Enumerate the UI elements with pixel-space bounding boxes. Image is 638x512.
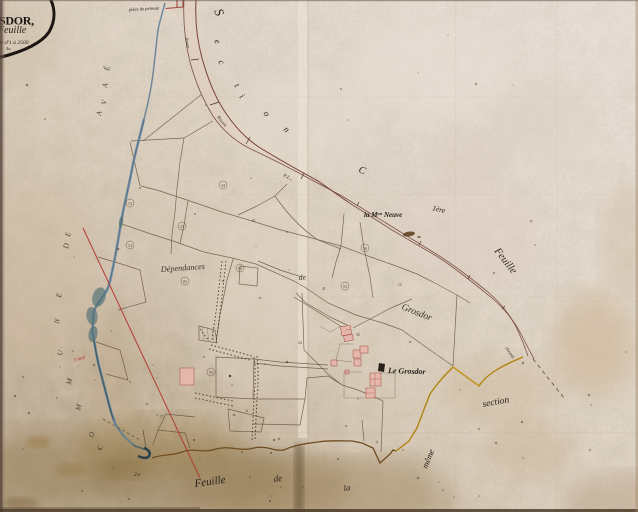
svg-text:90: 90 bbox=[238, 266, 242, 271]
svg-text:5a: 5a bbox=[6, 46, 11, 51]
svg-text:53: 53 bbox=[343, 284, 347, 289]
svg-text:85: 85 bbox=[183, 279, 187, 284]
svg-text:56: 56 bbox=[363, 246, 367, 251]
svg-text:la Mon Neuve: la Mon Neuve bbox=[364, 211, 402, 219]
svg-text:de: de bbox=[273, 473, 283, 484]
svg-text:32: 32 bbox=[356, 333, 360, 337]
svg-text:24: 24 bbox=[298, 341, 302, 345]
svg-text:33: 33 bbox=[180, 224, 184, 229]
svg-text:12: 12 bbox=[398, 283, 402, 287]
svg-text:la: la bbox=[343, 482, 351, 493]
svg-text:Le Grosdor: Le Grosdor bbox=[387, 366, 427, 376]
svg-text:13: 13 bbox=[128, 201, 132, 206]
svg-text:2.e: 2.e bbox=[134, 472, 141, 478]
svg-text:61: 61 bbox=[252, 219, 256, 223]
svg-text:b: b bbox=[246, 409, 248, 413]
svg-text:17: 17 bbox=[160, 415, 164, 419]
svg-text:41: 41 bbox=[322, 287, 326, 291]
svg-text:95: 95 bbox=[209, 370, 213, 375]
